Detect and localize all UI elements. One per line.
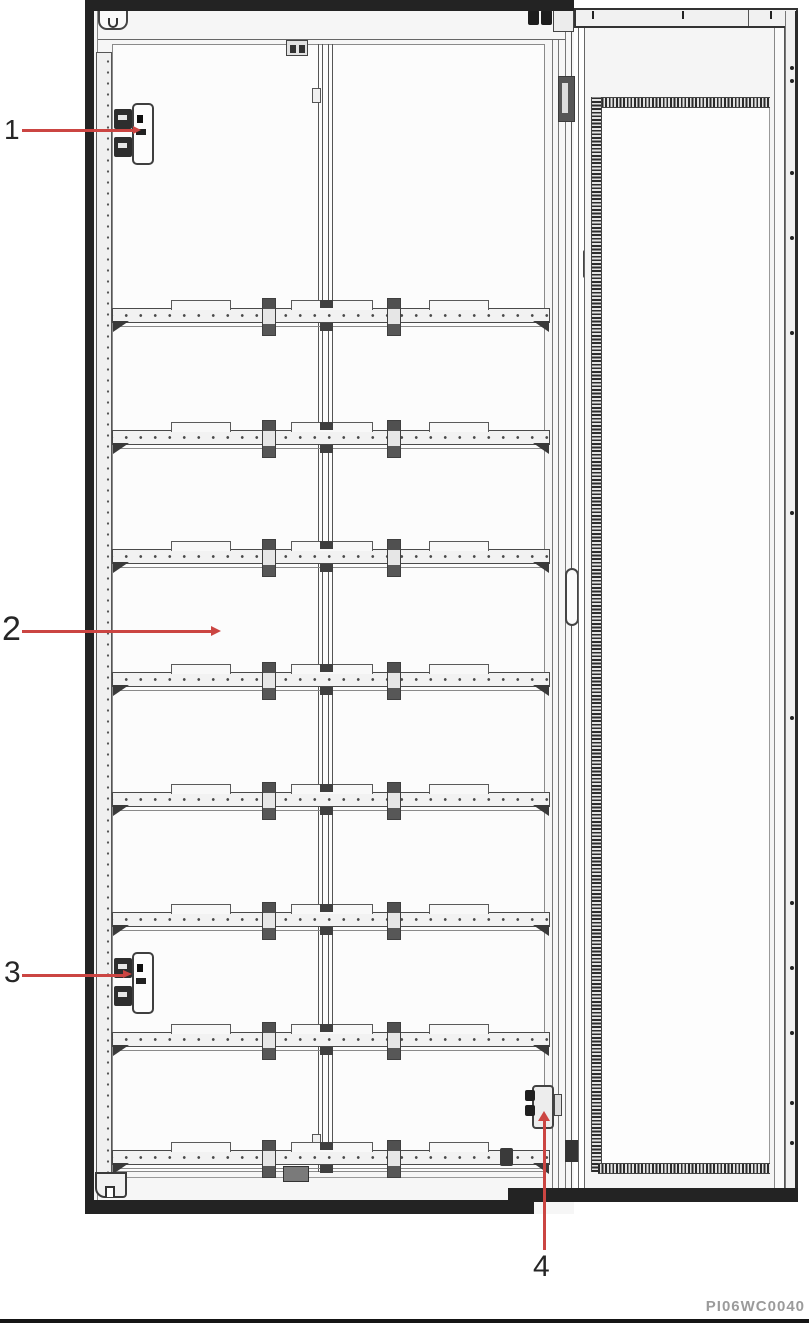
rail-tab: [171, 422, 231, 432]
center-post-clip: [320, 904, 333, 912]
door-screw-tick: [592, 11, 594, 19]
rail-tab: [429, 664, 489, 674]
top-hinge-bolt: [541, 10, 552, 25]
door-screw: [790, 966, 794, 970]
rail-tab: [429, 904, 489, 914]
door-screw: [790, 901, 794, 905]
base-bracket-center: [283, 1166, 309, 1182]
frame-top-bar: [85, 0, 574, 11]
hinge-slit: [118, 115, 127, 120]
top-hinge-bracket: [553, 8, 574, 32]
figure-part-code: PI06WC0040: [640, 1298, 805, 1315]
rail-clamp: [387, 539, 401, 577]
leveling-foot: [95, 1172, 127, 1198]
parts-location-figure: 1 2 3 4 PI06WC0040: [0, 0, 809, 1326]
callout-leader-2: [22, 630, 212, 633]
mounting-rail: [112, 549, 550, 564]
hinge-pin-bracket-bottom: [565, 1140, 579, 1162]
rail-clamp: [387, 662, 401, 700]
rail-clamp: [262, 1140, 276, 1178]
callout-arrowhead-1: [133, 126, 141, 134]
frame-left-bar: [85, 0, 94, 1214]
center-post-clip: [320, 927, 333, 935]
clamp-nub: [299, 45, 305, 53]
rail-tab: [429, 1142, 489, 1152]
rail-clamp: [262, 420, 276, 458]
rail-tab: [171, 664, 231, 674]
hinge-pin-slot: [562, 83, 568, 113]
rail-clamp: [262, 902, 276, 940]
mounting-rail: [112, 672, 550, 687]
door-screw-tick: [770, 11, 772, 19]
door-screw: [790, 331, 794, 335]
right-wall-line-2: [558, 40, 559, 1188]
door-inner-panel: [600, 106, 770, 1164]
door-screw: [790, 1101, 794, 1105]
center-post-top-clamp: [286, 40, 308, 56]
door-screw: [790, 236, 794, 240]
center-post-clip: [320, 300, 333, 308]
hinge-pin-bracket-top: [558, 76, 575, 122]
center-post-clip: [320, 687, 333, 695]
latch-bolt: [525, 1090, 535, 1101]
center-post-clip: [320, 1142, 333, 1150]
rail-tab: [171, 1142, 231, 1152]
door-gasket-top: [598, 97, 770, 108]
rail-clamp: [387, 420, 401, 458]
callout-label-3: 3: [4, 958, 21, 988]
rail-tab: [171, 904, 231, 914]
lifting-bracket: [98, 8, 128, 30]
hinge-slit: [118, 992, 127, 997]
door-screw: [790, 511, 794, 515]
rail-tab: [429, 422, 489, 432]
rail-clamp: [387, 1022, 401, 1060]
rail-tab: [171, 1024, 231, 1034]
center-post-clip: [320, 564, 333, 572]
door-screw: [790, 171, 794, 175]
center-post-clip: [320, 784, 333, 792]
bottom-inner-edge-line: [97, 1177, 544, 1178]
door-right-frame: [774, 28, 785, 1188]
door-screw: [790, 79, 794, 83]
mounting-rail: [112, 1032, 550, 1047]
hinge-pin: [137, 115, 143, 123]
door-handle: [565, 568, 579, 626]
rail-tab: [429, 784, 489, 794]
right-wall-line-1: [552, 40, 553, 1188]
mounting-rail: [112, 1150, 550, 1165]
door-top-bar: [574, 8, 798, 28]
callout-label-1: 1: [4, 116, 20, 144]
door-top-bar-divider: [748, 10, 749, 26]
rail-clamp: [387, 902, 401, 940]
center-post-clip: [320, 541, 333, 549]
lifting-bracket-notch: [108, 18, 118, 28]
rail-tab: [429, 1024, 489, 1034]
callout-arrowhead-3: [123, 970, 132, 978]
center-post-clip: [320, 422, 333, 430]
hinge-slit: [118, 143, 127, 148]
callout-leader-1: [22, 129, 134, 132]
door-screw: [790, 1031, 794, 1035]
door-screw: [790, 716, 794, 720]
door-gasket-left: [591, 97, 602, 1172]
door-hinge-lower: [114, 950, 164, 1012]
rail-clamp: [262, 782, 276, 820]
rail-clamp: [262, 1022, 276, 1060]
rail-tab: [171, 541, 231, 551]
center-post-clip: [320, 323, 333, 331]
frame-bottom-bar-door: [530, 1188, 798, 1202]
top-inner-edge-line: [97, 39, 566, 40]
door-edge-line: [578, 28, 579, 1188]
hinge-slit: [118, 964, 127, 969]
rail-clamp: [262, 298, 276, 336]
latch-keeper: [554, 1094, 562, 1116]
hinge-pin: [137, 964, 143, 972]
rail-clamp: [262, 539, 276, 577]
door-screw: [790, 1141, 794, 1145]
base-bracket-right: [500, 1148, 513, 1166]
clamp-nub: [290, 45, 296, 53]
frame-bottom-bar-cabinet: [85, 1200, 512, 1214]
latch-bolt: [525, 1105, 535, 1116]
door-gasket-bottom: [598, 1163, 770, 1174]
rail-tab: [171, 300, 231, 310]
callout-label-2: 2: [2, 612, 21, 646]
mounting-rail: [112, 308, 550, 323]
rail-clamp: [387, 1140, 401, 1178]
door-screw: [790, 66, 794, 70]
mounting-rail: [112, 430, 550, 445]
center-post-clip: [320, 1024, 333, 1032]
page-bottom-rule: [0, 1319, 809, 1323]
center-post: [318, 44, 333, 1172]
center-post-clip: [320, 807, 333, 815]
door-outer-strip: [785, 11, 798, 1202]
center-post-slider-upper: [312, 88, 321, 103]
mounting-rail: [112, 912, 550, 927]
center-post-clip: [320, 1165, 333, 1173]
hinge-mark: [136, 978, 146, 984]
callout-arrowhead-2: [211, 626, 221, 636]
rail-clamp: [262, 662, 276, 700]
center-post-clip: [320, 664, 333, 672]
rail-clamp: [387, 782, 401, 820]
rail-tab: [171, 784, 231, 794]
callout-leader-3: [22, 974, 124, 977]
center-post-clip: [320, 445, 333, 453]
rail-tab: [429, 541, 489, 551]
callout-label-4: 4: [533, 1252, 550, 1282]
foot-notch: [105, 1186, 115, 1197]
left-upright-perforated-rail: [96, 52, 112, 1186]
center-post-clip: [320, 1047, 333, 1055]
rail-clamp: [387, 298, 401, 336]
top-hinge-bolt: [528, 10, 539, 25]
rail-tab: [429, 300, 489, 310]
door-screw-tick: [682, 11, 684, 19]
callout-leader-4: [543, 1120, 546, 1250]
mounting-rail: [112, 792, 550, 807]
